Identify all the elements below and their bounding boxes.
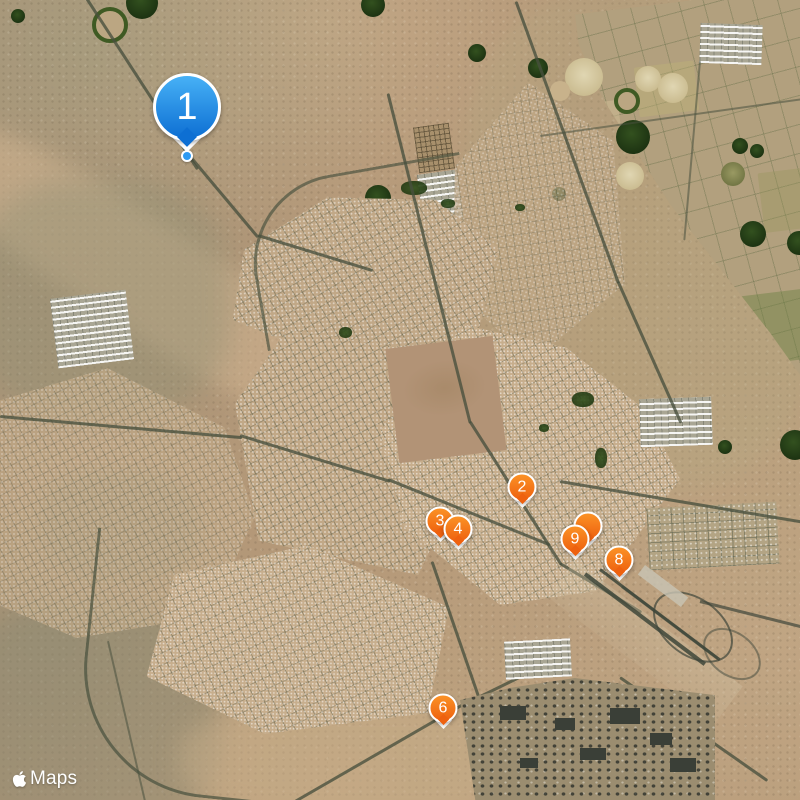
attribution-label: Maps [30,768,77,790]
map-marker-9[interactable]: 9 [561,525,590,554]
map-canvas[interactable]: 2 3 4 9 8 6 1 Maps [0,0,800,800]
map-marker-6[interactable]: 6 [429,694,458,723]
map-marker-1[interactable]: 1 [153,73,221,141]
map-marker-4[interactable]: 4 [444,515,473,544]
marker-layer: 2 3 4 9 8 6 1 [0,0,800,800]
apple-logo-icon [12,770,27,788]
map-marker-8[interactable]: 8 [605,546,634,575]
map-attribution: Maps [12,768,77,790]
apple-maps-satellite-view: 2 3 4 9 8 6 1 Maps [0,0,800,800]
marker-number: 1 [176,86,197,129]
map-marker-2[interactable]: 2 [508,473,537,502]
